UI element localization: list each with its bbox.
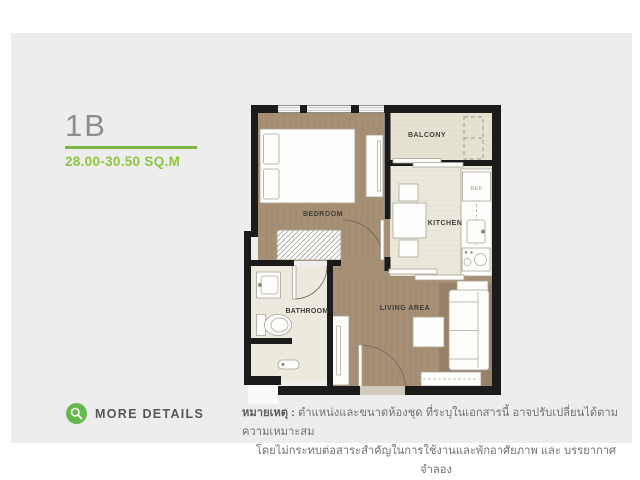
title-underline: [65, 146, 197, 149]
more-details-label: MORE DETAILS: [95, 407, 204, 421]
bedroom-window: [278, 105, 384, 113]
pillow-icon: [264, 169, 280, 199]
content-panel: 1B 28.00-30.50 SQ.M: [11, 33, 632, 443]
exterior-block: [248, 385, 278, 404]
dining-table-icon: [393, 203, 426, 238]
room-label-balcony: BALCONY: [408, 132, 446, 139]
pillow-icon: [264, 134, 280, 164]
magnifier-icon: [66, 403, 87, 424]
stool-icon: [399, 184, 418, 201]
stool-icon: [399, 240, 418, 257]
floor-plan: REF: [239, 85, 529, 415]
note-label: หมายเหตุ :: [242, 407, 295, 419]
shower-icon: [278, 360, 299, 369]
shower-divider-wall: [251, 338, 292, 344]
entrance-threshold: [360, 386, 405, 395]
room-label-kitchen: KITCHEN: [428, 220, 463, 227]
room-label-bathroom: BATHROOM: [285, 308, 328, 315]
fridge-label: REF: [470, 186, 482, 192]
unit-area: 28.00-30.50 SQ.M: [65, 154, 197, 169]
unit-name: 1B: [65, 109, 197, 143]
door-threshold: [384, 219, 390, 261]
note-line1: หมายเหตุ : ตำแหน่งและขนาดห้องชุด ที่ระบุ…: [242, 404, 630, 442]
unit-title-block: 1B 28.00-30.50 SQ.M: [65, 109, 197, 169]
note-line2: โดยไม่กระทบต่อสาระสำคัญในการใช้งานและพัก…: [242, 442, 630, 480]
more-details-button[interactable]: MORE DETAILS: [66, 403, 204, 424]
room-label-living: LIVING AREA: [380, 305, 430, 312]
disclaimer-note: หมายเหตุ : ตำแหน่งและขนาดห้องชุด ที่ระบุ…: [242, 404, 630, 480]
room-label-bedroom: BEDROOM: [303, 211, 343, 218]
coffee-table-icon: [413, 317, 444, 347]
tv-console-icon: [331, 316, 349, 385]
